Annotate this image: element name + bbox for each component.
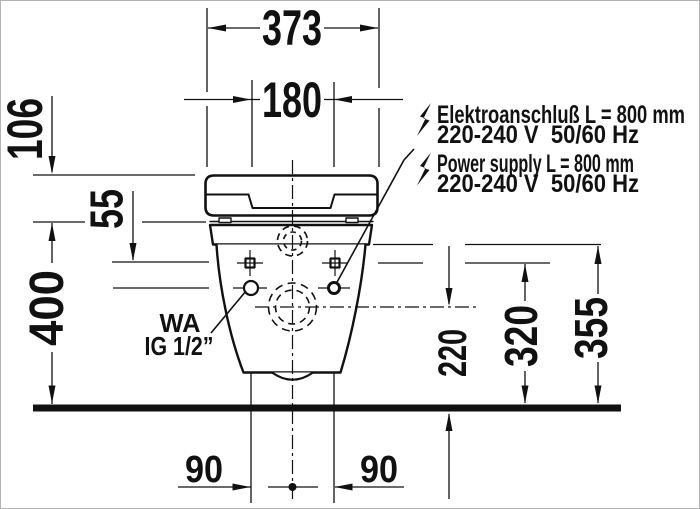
power-connection-point xyxy=(329,283,340,294)
technical-drawing-page: 373 180 106 400 55 220 320 355 90 90 Ele… xyxy=(0,0,700,509)
electrical-spec-en: 220-240 V 50/60 Hz xyxy=(437,170,639,198)
dim-label-outlet-height: 220 xyxy=(431,329,475,377)
dim-label-rim-offset: 55 xyxy=(81,189,133,229)
electrical-spec-de: 220-240 V 50/60 Hz xyxy=(437,121,639,149)
floor-line xyxy=(33,405,621,412)
dim-label-outlet-offset-left: 90 xyxy=(185,449,223,491)
dim-label-cover-height: 106 xyxy=(0,98,53,160)
toilet-installation-diagram: 373 180 106 400 55 220 320 355 90 90 Ele… xyxy=(0,0,700,509)
dim-label-rim-height: 400 xyxy=(21,270,74,346)
dim-label-fixing-width: 180 xyxy=(262,72,322,128)
bowl-outline xyxy=(217,245,366,373)
water-connection-point xyxy=(244,281,258,295)
dim-label-outlet-offset-right: 90 xyxy=(360,449,398,491)
dim-label-connection-height: 355 xyxy=(565,297,617,359)
seat-buffer-right xyxy=(346,218,358,223)
dim-label-overall-width: 373 xyxy=(262,0,322,56)
water-thread-label: IG 1/2” xyxy=(145,331,214,361)
dimension-dot xyxy=(289,483,297,491)
ceramic-rim xyxy=(210,225,372,245)
seat-buffer-left xyxy=(219,218,231,223)
dim-label-fixing-height: 320 xyxy=(495,305,547,367)
